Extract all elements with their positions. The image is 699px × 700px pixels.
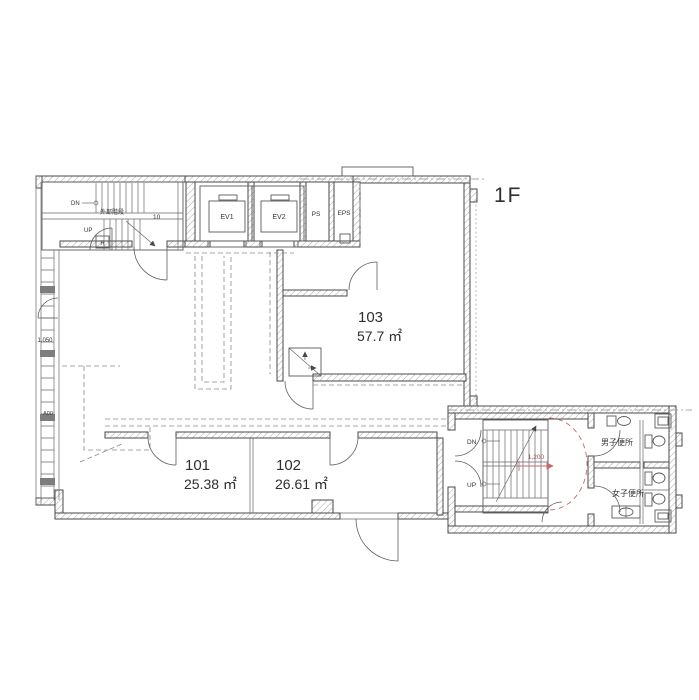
page: { "floor_label": "1F", "rooms": [ {"numb… bbox=[0, 0, 699, 700]
stair-radius-dimension: 1,200 bbox=[528, 454, 545, 461]
mens-toilet-label: 男子便所 bbox=[601, 437, 633, 447]
room-102-area: 26.61 ㎡ bbox=[275, 476, 328, 492]
floor-plan-drawing: DN 外部階段 10 UP R EV1 EV2 PS EPS 103 57.7 … bbox=[0, 0, 699, 700]
toilets: 男子便所 女子便所 bbox=[594, 414, 671, 524]
ps-label: PS bbox=[312, 211, 321, 218]
external-stair-name: 外部階段 bbox=[100, 208, 124, 216]
left-wall-dimension: 1,050 bbox=[37, 338, 53, 344]
floor-title: 1F bbox=[494, 184, 523, 207]
room-102-number: 102 bbox=[276, 457, 301, 474]
womens-toilet-label: 女子便所 bbox=[612, 488, 644, 498]
internal-stair-dn-label: DN bbox=[467, 439, 477, 446]
ev2-label: EV2 bbox=[272, 214, 285, 221]
external-stair-steps: 10 bbox=[153, 214, 161, 221]
room-101-number: 101 bbox=[185, 457, 210, 474]
main-entrance-door bbox=[340, 513, 398, 561]
external-stair-up-label: UP bbox=[84, 228, 92, 234]
external-stair: DN 外部階段 10 UP R bbox=[42, 182, 183, 250]
corridor-dashed-lines bbox=[62, 247, 464, 462]
eps-label: EPS bbox=[337, 210, 351, 217]
ev1-label: EV1 bbox=[220, 214, 233, 221]
room-103-number: 103 bbox=[358, 309, 383, 326]
interior-walls bbox=[60, 182, 669, 526]
left-wall-mark: A00 bbox=[43, 411, 53, 417]
room-101-area: 25.38 ㎡ bbox=[184, 476, 237, 492]
elevator-core: EV1 EV2 PS EPS bbox=[200, 186, 351, 247]
external-stair-dn-label: DN bbox=[71, 201, 80, 207]
internal-stair-up-label: UP bbox=[467, 482, 476, 489]
external-stair-r-mark: R bbox=[100, 241, 105, 247]
room-103-area: 57.7 ㎡ bbox=[357, 328, 402, 344]
drawing-sheet: DN 外部階段 10 UP R EV1 EV2 PS EPS 103 57.7 … bbox=[0, 0, 699, 700]
